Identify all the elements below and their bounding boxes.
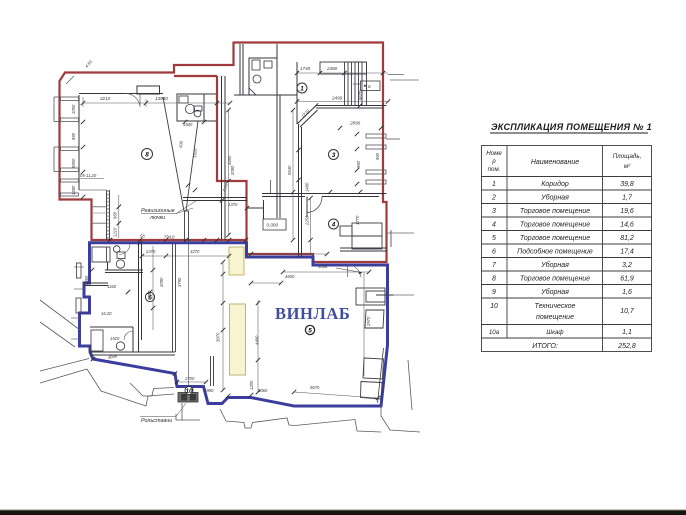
svg-text:Техническое: Техническое: [535, 303, 576, 310]
svg-text:1370: 1370: [228, 202, 238, 207]
svg-text:3210: 3210: [100, 96, 111, 101]
svg-text:14,6: 14,6: [620, 222, 634, 229]
svg-text:9670: 9670: [310, 385, 320, 390]
svg-text:1210: 1210: [113, 227, 118, 237]
svg-text:890: 890: [71, 132, 76, 140]
svg-text:м²: м²: [624, 163, 631, 170]
svg-text:Шкаф: Шкаф: [546, 329, 563, 336]
svg-text:10а: 10а: [489, 329, 500, 336]
svg-text:5: 5: [492, 235, 496, 242]
svg-text:пом.: пом.: [488, 166, 501, 173]
svg-text:1080: 1080: [147, 290, 152, 300]
svg-text:1,6: 1,6: [622, 289, 632, 296]
svg-text:3060: 3060: [258, 388, 268, 393]
svg-text:2480: 2480: [326, 66, 338, 71]
svg-text:8670: 8670: [358, 90, 363, 100]
svg-text:Уборная: Уборная: [540, 194, 569, 202]
svg-text:1200: 1200: [249, 380, 254, 390]
svg-text:2970: 2970: [366, 316, 371, 327]
svg-text:Торговое помещение: Торговое помещение: [520, 208, 590, 215]
svg-text:лючки: лючки: [149, 215, 165, 221]
svg-text:1770: 1770: [355, 215, 360, 225]
svg-text:Уборная: Уборная: [540, 261, 569, 269]
svg-text:4600: 4600: [285, 274, 295, 279]
svg-text:3450: 3450: [227, 155, 232, 165]
svg-text:1: 1: [300, 86, 304, 93]
svg-text:2700: 2700: [184, 376, 195, 381]
svg-text:794,8: 794,8: [164, 235, 175, 240]
svg-text:Уборная: Уборная: [540, 288, 569, 296]
svg-text:2080: 2080: [230, 165, 235, 176]
svg-text:600: 600: [178, 140, 184, 148]
svg-text:6: 6: [492, 249, 496, 256]
svg-text:3: 3: [332, 152, 336, 159]
svg-text:960: 960: [113, 211, 118, 219]
svg-text:р: р: [491, 158, 496, 165]
svg-text:10: 10: [490, 303, 498, 310]
svg-text:Рольставни: Рольставни: [141, 418, 172, 424]
svg-text:4: 4: [331, 222, 336, 229]
svg-text:1920: 1920: [192, 148, 198, 158]
svg-text:4088: 4088: [318, 264, 328, 269]
svg-text:1: 1: [492, 181, 496, 188]
svg-text:960: 960: [375, 152, 380, 160]
svg-text:1280: 1280: [71, 185, 76, 195]
svg-text:Номе: Номе: [486, 150, 502, 157]
svg-text:3970: 3970: [216, 332, 221, 342]
svg-text:Ревизионные: Ревизионные: [141, 208, 175, 214]
svg-text:1740: 1740: [300, 66, 311, 71]
svg-text:2: 2: [491, 195, 496, 202]
svg-text:ВИНЛАБ: ВИНЛАБ: [275, 304, 350, 323]
svg-text:16.20: 16.20: [101, 311, 112, 316]
svg-text:ИТОГО:: ИТОГО:: [532, 343, 558, 350]
svg-text:3790: 3790: [177, 277, 182, 287]
svg-text:17,4: 17,4: [620, 249, 634, 256]
svg-text:2370: 2370: [145, 249, 156, 254]
svg-text:8: 8: [145, 152, 149, 159]
svg-text:6: 6: [368, 84, 371, 89]
svg-text:8: 8: [492, 276, 496, 283]
svg-text:1980: 1980: [204, 388, 214, 393]
svg-text:1520: 1520: [110, 336, 120, 341]
svg-text:2090: 2090: [159, 277, 164, 288]
svg-text:19,6: 19,6: [620, 208, 634, 215]
svg-text:960: 960: [356, 160, 361, 168]
svg-text:5: 5: [308, 328, 312, 335]
svg-text:3: 3: [492, 208, 496, 215]
svg-text:252,8: 252,8: [617, 343, 636, 350]
svg-text:61,9: 61,9: [620, 276, 634, 283]
svg-text:1050: 1050: [71, 104, 76, 114]
svg-text:9540: 9540: [287, 165, 292, 175]
svg-text:Торговое помещение: Торговое помещение: [520, 235, 590, 242]
svg-text:58: 58: [140, 234, 145, 239]
svg-text:10,7: 10,7: [620, 308, 635, 315]
svg-text:3270: 3270: [190, 249, 200, 254]
svg-text:4480: 4480: [255, 335, 260, 345]
svg-text:помещение: помещение: [536, 314, 574, 321]
svg-text:ЭКСПЛИКАЦИЯ ПОМЕЩЕНИЯ № 1: ЭКСПЛИКАЦИЯ ПОМЕЩЕНИЯ № 1: [491, 122, 652, 132]
svg-text:1490: 1490: [305, 182, 310, 192]
svg-text:Площадь,: Площадь,: [613, 153, 642, 160]
svg-text:3,2: 3,2: [622, 262, 632, 269]
svg-text:39,8: 39,8: [620, 181, 634, 188]
svg-text:4460: 4460: [84, 275, 89, 285]
svg-text:8950: 8950: [71, 158, 76, 168]
svg-text:81,2: 81,2: [620, 235, 634, 242]
svg-text:Торговое помещение: Торговое помещение: [520, 222, 590, 229]
svg-text:13980: 13980: [155, 96, 168, 101]
svg-text:2490: 2490: [331, 96, 343, 101]
svg-text:Торговое помещение: Торговое помещение: [520, 276, 590, 283]
svg-text:Коридор: Коридор: [541, 180, 569, 188]
svg-text:9: 9: [492, 289, 496, 296]
svg-text:1,7: 1,7: [622, 195, 633, 202]
svg-text:1160: 1160: [107, 284, 117, 289]
svg-text:Подсобное помещение: Подсобное помещение: [517, 248, 593, 256]
svg-text:10: 10: [185, 388, 193, 395]
svg-text:Наименование: Наименование: [531, 159, 579, 166]
svg-text:0.000: 0.000: [267, 223, 279, 228]
svg-text:05-11,20: 05-11,20: [80, 173, 97, 178]
svg-text:2890: 2890: [349, 121, 361, 126]
svg-text:1,1: 1,1: [622, 329, 632, 336]
svg-text:4: 4: [492, 222, 496, 229]
svg-text:2250: 2250: [305, 215, 310, 226]
